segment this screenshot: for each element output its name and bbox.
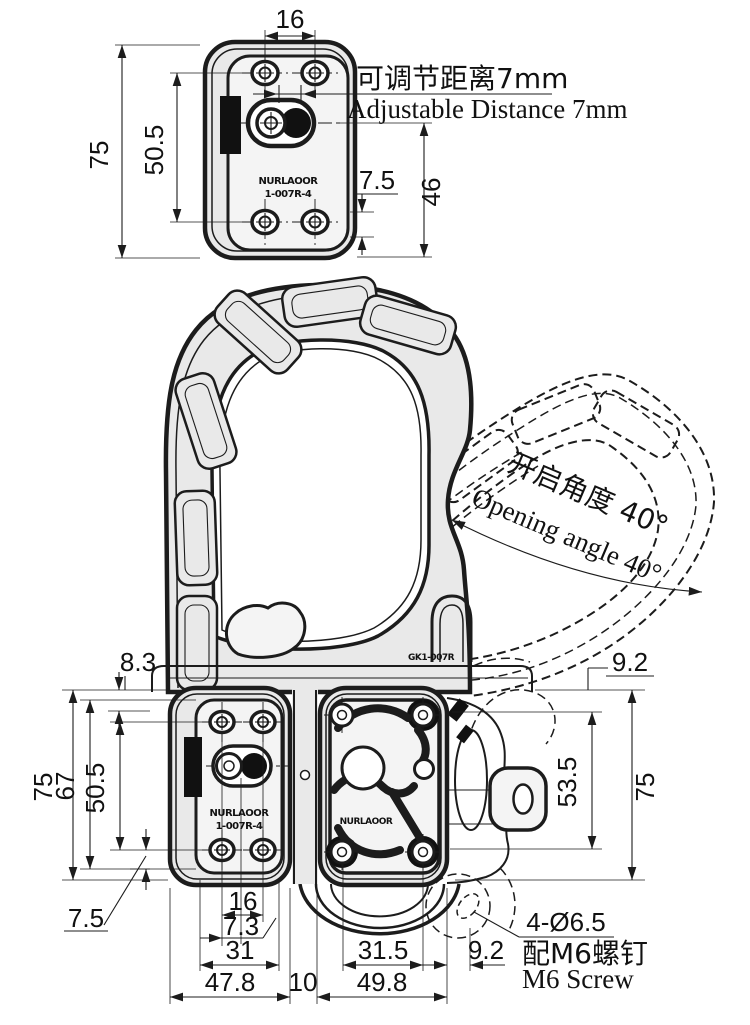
front-right-plate: NURLAOOR — [320, 688, 447, 885]
note-adjustable-cn: 可调节距离7mm — [356, 62, 568, 95]
handle-marking: GK1-007R — [408, 653, 455, 663]
dim-bottom-left-width: 47.8 — [205, 967, 256, 997]
plate-marking-line1: NURLAOOR — [209, 808, 269, 819]
opening-angle-annotation: 开启角度 40° Opening angle 40° — [452, 446, 702, 592]
latch-engineering-drawing: NURLAOOR 1-007R-4 16 75 50.5 7.5 4 — [0, 0, 750, 1025]
plate-marking-line1: NURLAOOR — [258, 176, 318, 187]
dim-bottom-right-hole-span: 31.5 — [358, 935, 409, 965]
dim-right-offset: 7.5 — [359, 165, 395, 195]
technical-drawing-page: NURLAOOR 1-007R-4 16 75 50.5 7.5 4 — [0, 0, 750, 1025]
note-hole-spec: 4-Ø6.5 — [526, 907, 606, 937]
dim-left-bottom-offset: 7.5 — [68, 903, 104, 933]
dim-left-offset: 8.3 — [120, 647, 156, 677]
dim-bottom-panel-width: 31 — [226, 935, 255, 965]
top-plate: NURLAOOR 1-007R-4 — [205, 42, 355, 258]
dim-right-hole-height: 53.5 — [552, 757, 582, 808]
dim-bottom-edge-offset: 9.2 — [468, 935, 504, 965]
dim-hole-spacing: 50.5 — [139, 125, 169, 176]
center-column — [292, 688, 318, 884]
dim-left-hole-spacing: 50.5 — [80, 763, 110, 814]
front-left-plate: NURLAOOR 1-007R-4 — [170, 688, 290, 885]
dim-right-height: 46 — [416, 178, 446, 207]
side-latch-block — [220, 96, 241, 154]
dim-top-width: 16 — [276, 4, 305, 34]
plate-marking-right: NURLAOOR — [340, 817, 393, 827]
front-view: NURLAOOR 1-007R-4 NURLAOOR — [28, 647, 660, 1004]
pin-circle — [415, 760, 434, 779]
note-adjustable-en: Adjustable Distance 7mm — [347, 94, 627, 124]
dim-bottom-gap: 10 — [289, 967, 318, 997]
latch-cam — [226, 603, 304, 657]
dim-left-height: 75 — [84, 141, 114, 170]
plate-marking-line2: 1-007R-4 — [216, 821, 263, 832]
striker-slot — [514, 785, 533, 814]
handle-closed-solid: GK1-007R — [152, 276, 532, 692]
note-screw-en: M6 Screw — [522, 964, 634, 994]
dim-right-height: 75 — [630, 773, 660, 802]
dim-left-inner-height: 67 — [50, 772, 80, 801]
cam-circle — [342, 747, 384, 789]
plate-marking-line2: 1-007R-4 — [265, 189, 312, 200]
top-view: NURLAOOR 1-007R-4 16 75 50.5 7.5 4 — [84, 4, 627, 258]
dim-right-offset: 9.2 — [612, 647, 648, 677]
dim-bottom-right-width: 49.8 — [357, 967, 408, 997]
side-housing — [447, 698, 546, 883]
